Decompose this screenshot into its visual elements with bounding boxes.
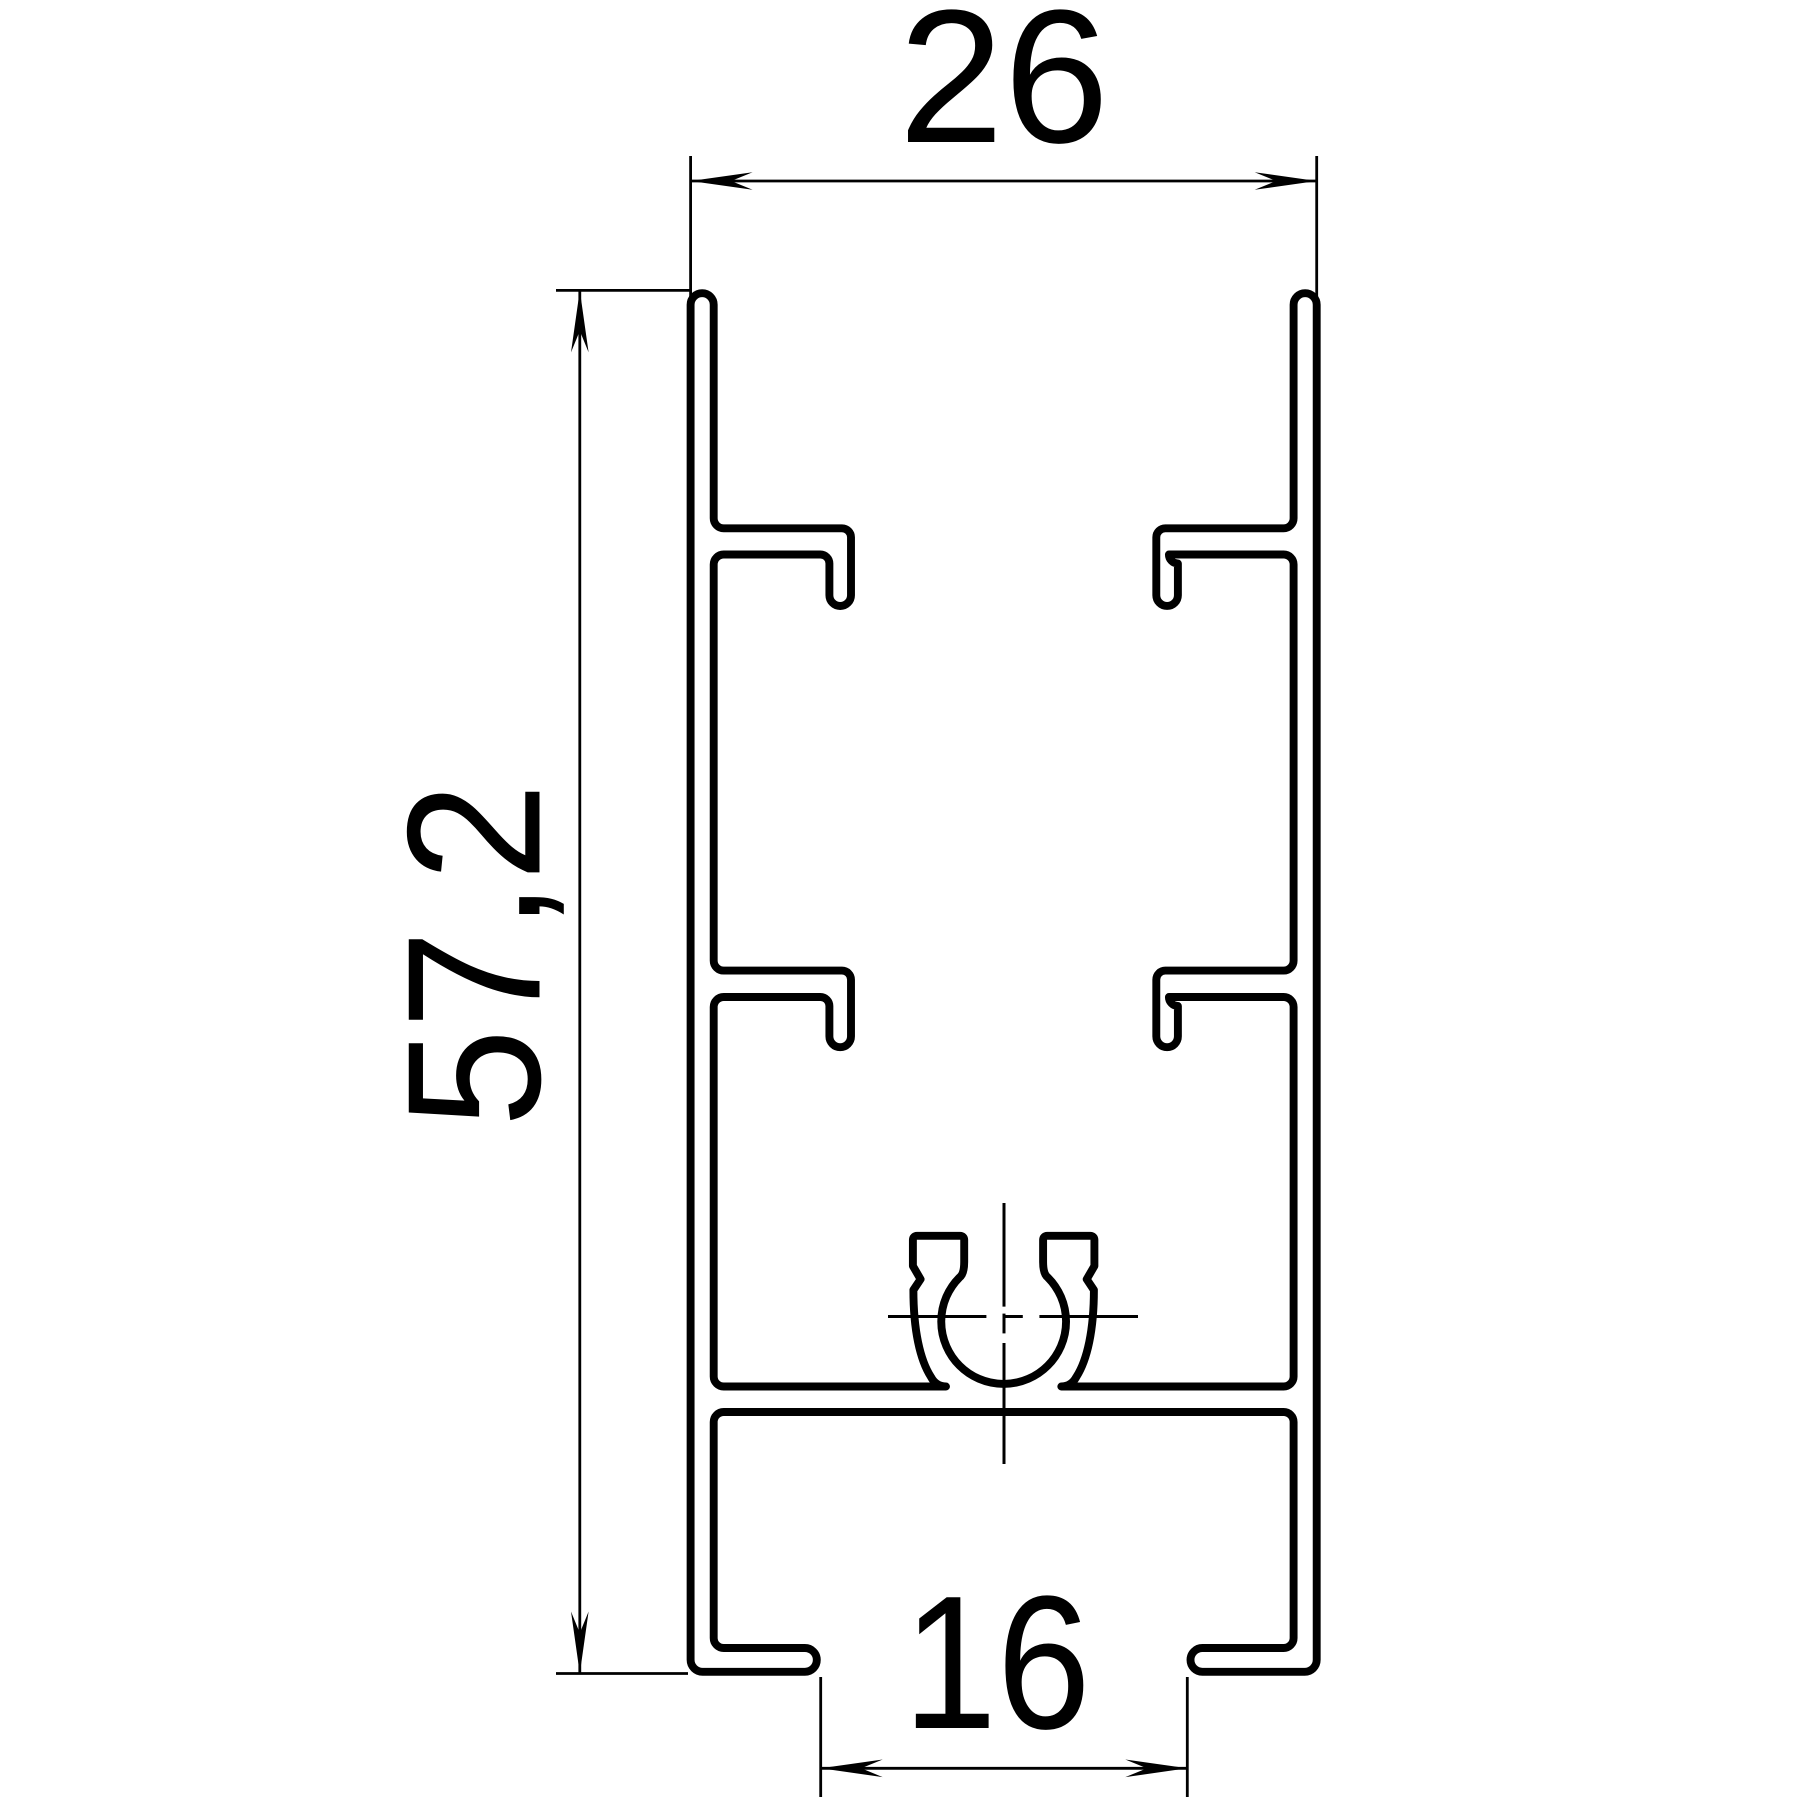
svg-text:26: 26	[899, 0, 1110, 183]
svg-text:16: 16	[903, 1557, 1091, 1769]
svg-text:57,2: 57,2	[369, 783, 581, 1127]
